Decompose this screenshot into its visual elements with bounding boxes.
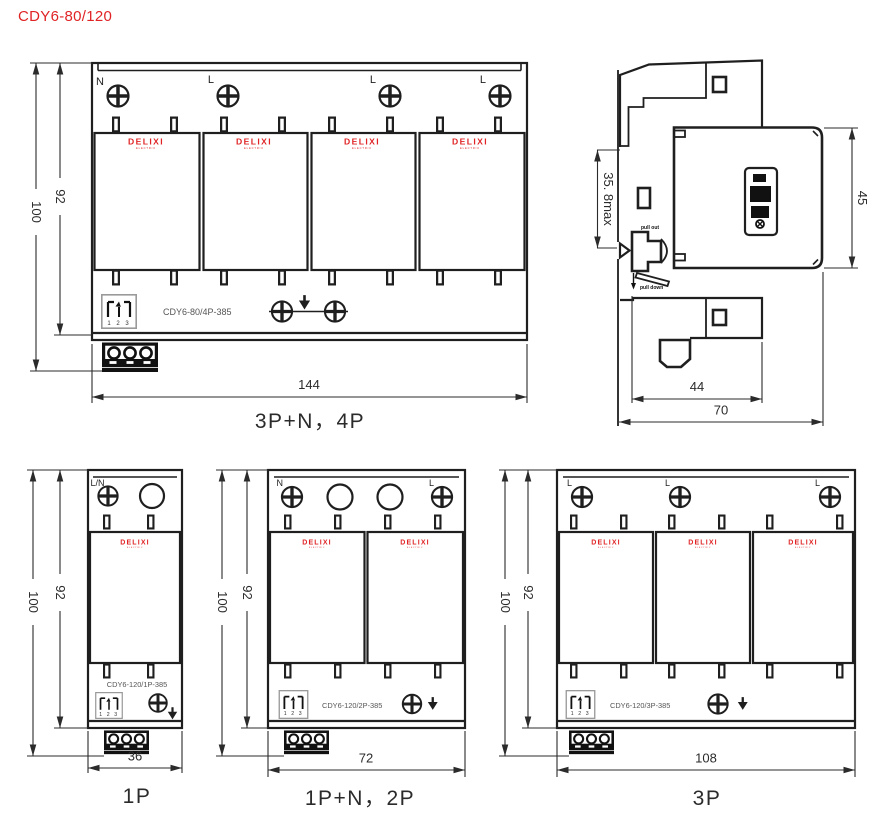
vent-slot [279,118,285,132]
vent-slot [495,118,501,132]
vent-slot [437,271,443,285]
vent-slot [148,516,153,529]
vent-slot [387,271,393,285]
dim-width: 72 [359,751,373,766]
terminal-screw-icon [98,486,117,505]
dim-body-height: 92 [53,585,68,599]
dim-height: 100 [215,591,230,613]
terminal-label-l: L [370,74,376,86]
device-outline-4p [92,63,527,340]
model-text: CDY6-120/1P-385 [107,680,167,689]
terminal-label-l: L [429,478,434,488]
dim-rail-height: 45 [855,191,870,205]
vent-slot [767,516,772,529]
vent-slot [571,516,576,529]
front-view-3p: L L L 1 2 3 CDY6-120/3P-385 [498,470,855,810]
terminal-screw-icon [490,86,511,107]
vent-slot [837,516,842,529]
vent-slot [335,516,340,529]
caption-2p: 1P+N，2P [305,787,415,810]
terminal-label-l: L [567,478,572,488]
vent-slot [285,516,290,529]
vent-slot [387,118,393,132]
vent-slot [719,516,724,529]
vent-slot [621,516,626,529]
front-view-2p: N L 1 2 3 CDY6-120/2P-385 [215,470,465,810]
dim-width: 144 [298,377,320,392]
side-profile: pull out pull down [618,61,822,427]
terminal-block [284,732,329,754]
model-text: CDY6-80/4P-385 [163,307,232,317]
vent-slot [837,665,842,678]
dim-width: 36 [128,749,142,764]
window-digits: 1 2 3 [107,321,130,327]
clip-label-down: pull down [640,285,663,291]
window-digits: 1 2 3 [99,712,119,718]
vent-slot [113,271,119,285]
caption-4p: 3P+N，4P [255,410,365,433]
mount-screw-icon [272,301,292,321]
terminal-label-n: N [96,76,104,88]
terminal-screw-icon [218,86,239,107]
dim-front-depth: 35. 8max [601,172,616,226]
vent-slot [113,118,119,132]
vent-slot [104,516,109,529]
dim-body-height: 92 [240,585,255,599]
device-outline-2p [268,470,465,728]
front-view-4p: N L L L 1 2 3 CDY6-80/4P-385 [29,63,527,433]
vent-slot [495,271,501,285]
terminal-label-l: L [480,74,486,86]
dim-height: 100 [26,591,41,613]
terminal-block [569,732,614,754]
terminal-label-l: L [208,74,214,86]
device-outline-3p [557,470,855,728]
technical-drawing-canvas: CDY6-80/120 [0,0,887,830]
device-outline-1p [88,470,182,728]
vent-slot [171,271,177,285]
terminal-screw-icon [282,487,302,507]
vent-slot [148,665,153,678]
vent-slot [437,118,443,132]
vent-slot [621,665,626,678]
side-view: pull out pull down 35. 8max 45 [597,61,870,427]
vent-slot [435,516,440,529]
dim-body-height: 92 [521,585,536,599]
terminal-screw-icon [820,487,840,507]
terminal-screw-icon [572,487,592,507]
vent-slot [329,271,335,285]
model-text: CDY6-120/3P-385 [610,701,670,710]
clip-label-out: pull out [641,225,659,231]
mount-screw-icon [149,694,167,712]
caption-3p: 3P [693,787,722,810]
vent-slot [329,118,335,132]
window-digits: 1 2 3 [571,711,591,717]
vent-slot [279,271,285,285]
vent-slot [719,665,724,678]
din-rail-clip: pull out pull down [631,225,669,291]
dim-width: 108 [695,751,717,766]
vent-slot [385,516,390,529]
window-digits: 1 2 3 [284,711,304,717]
terminal-block [102,344,158,372]
model-text: CDY6-120/2P-385 [322,701,382,710]
vent-slot [385,665,390,678]
terminal-block [104,732,149,754]
vent-slot [435,665,440,678]
vent-slot [285,665,290,678]
vent-slot [221,118,227,132]
caption-1p: 1P [123,785,152,808]
terminal-label-ln: L/N [91,478,105,488]
dim-body-height: 92 [53,189,68,203]
terminal-label-n: N [277,478,284,488]
vent-slot [104,665,109,678]
dim-height: 100 [29,201,44,223]
vent-slot [669,516,674,529]
vent-slot [767,665,772,678]
terminal-screw-icon [108,86,129,107]
terminal-screw-icon [670,487,690,507]
terminal-screw-icon [380,86,401,107]
vent-slot [221,271,227,285]
dim-total-depth: 70 [714,403,728,418]
vent-slot [171,118,177,132]
vent-slot [335,665,340,678]
mount-screw-icon [403,695,421,713]
mount-screw-icon [325,301,345,321]
dim-height: 100 [498,591,513,613]
dim-base-depth: 44 [690,379,704,394]
terminal-screw-icon [432,487,452,507]
terminal-label-l: L [815,478,820,488]
terminal-label-l: L [665,478,670,488]
front-view-1p: L/N CDY6-120/1P-385 1 2 3 100 [26,470,182,808]
mount-screw-icon [708,694,727,713]
dimension-drawing: DELIXI ELECTRIC [0,0,887,830]
vent-slot [669,665,674,678]
vent-slot [571,665,576,678]
